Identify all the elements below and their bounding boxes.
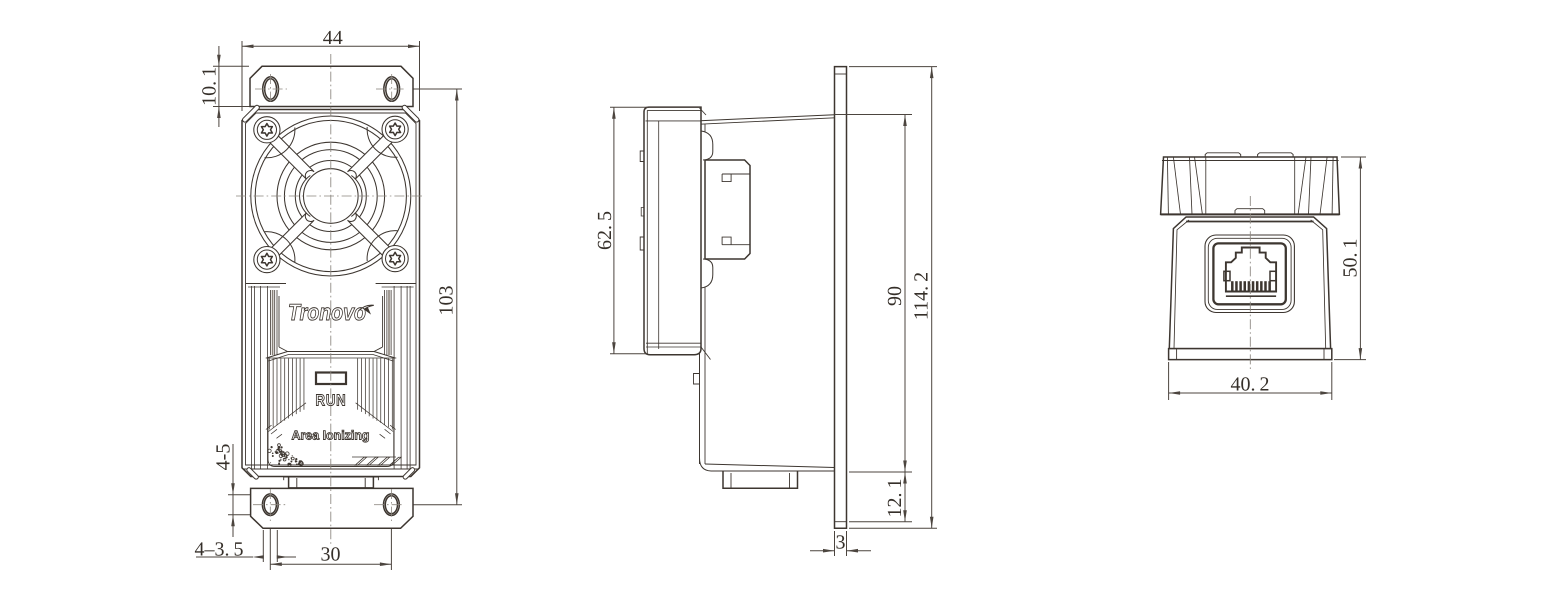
svg-text:62. 5: 62. 5 <box>594 211 616 250</box>
svg-text:40. 2: 40. 2 <box>1230 373 1269 395</box>
svg-text:4–3. 5: 4–3. 5 <box>194 539 243 561</box>
svg-text:50. 1: 50. 1 <box>1339 238 1361 277</box>
svg-text:44: 44 <box>323 27 343 49</box>
svg-text:90: 90 <box>884 286 906 306</box>
svg-text:10. 1: 10. 1 <box>199 67 221 106</box>
svg-text:Tronovo: Tronovo <box>288 299 366 325</box>
svg-text:103: 103 <box>436 286 458 316</box>
svg-text:30: 30 <box>321 544 341 566</box>
svg-text:4-5: 4-5 <box>213 444 235 471</box>
svg-text:3: 3 <box>836 532 846 554</box>
svg-text:12. 1: 12. 1 <box>884 478 906 517</box>
svg-text:114. 2: 114. 2 <box>911 272 933 320</box>
